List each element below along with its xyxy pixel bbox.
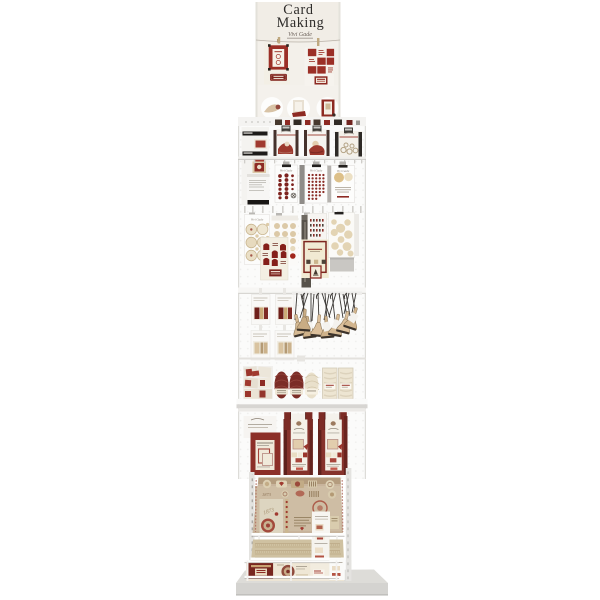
svg-text:Vivi Gade: Vivi Gade xyxy=(280,169,293,173)
svg-text:Vivi Gade: Vivi Gade xyxy=(310,169,323,173)
svg-text:Making: Making xyxy=(277,15,325,31)
svg-text:Vivi Gade: Vivi Gade xyxy=(288,32,312,38)
svg-text:Vivi Gade: Vivi Gade xyxy=(337,169,350,173)
svg-text:1873: 1873 xyxy=(262,492,272,497)
svg-text:Vivi Gade: Vivi Gade xyxy=(251,218,264,222)
